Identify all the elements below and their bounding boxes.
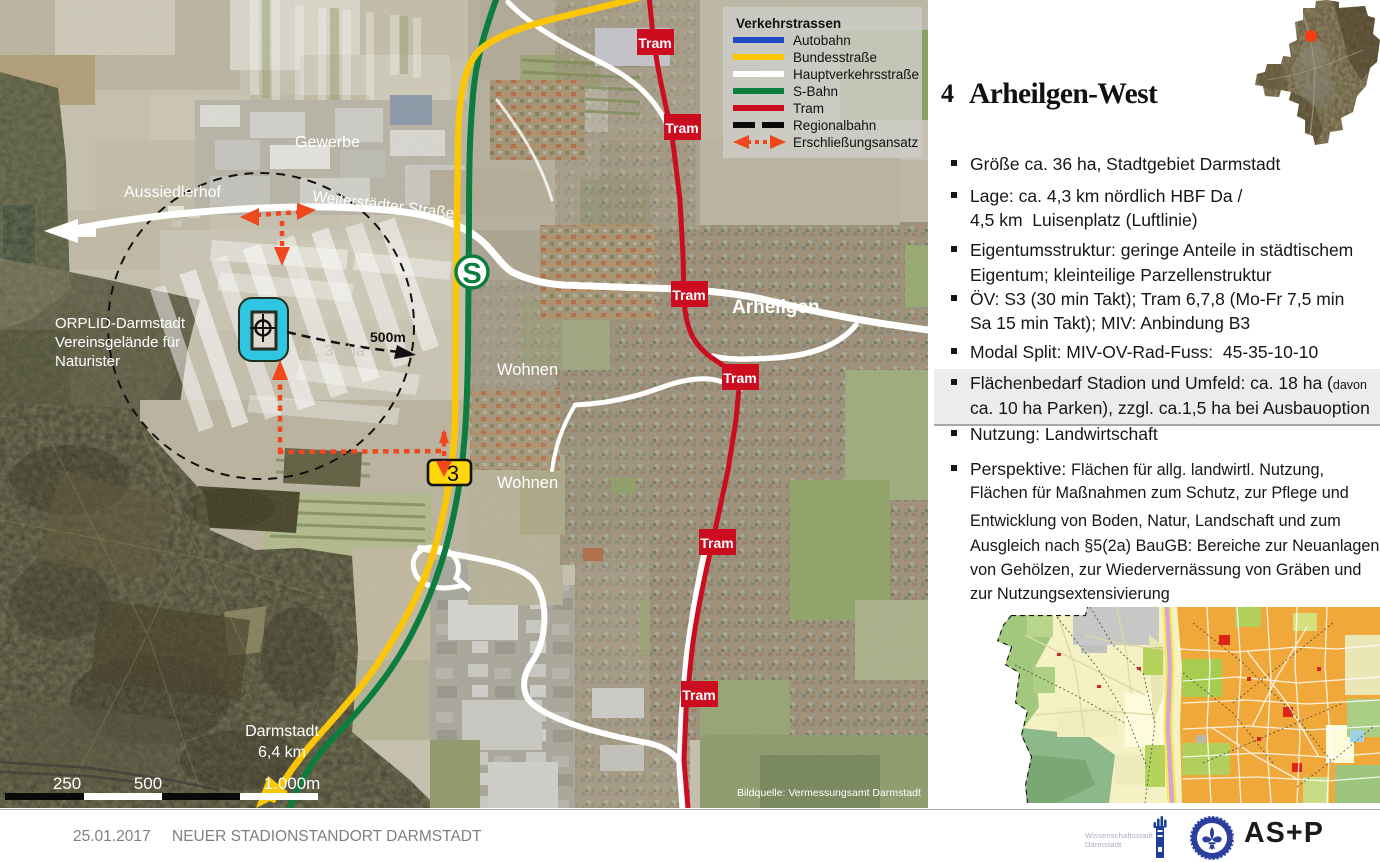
- svg-text:Tram: Tram: [793, 101, 824, 116]
- svg-text:Gewerbe: Gewerbe: [295, 134, 360, 151]
- svg-text:Autobahn: Autobahn: [793, 33, 851, 48]
- svg-text:Verkehrstrassen: Verkehrstrassen: [736, 16, 841, 31]
- svg-text:S: S: [462, 258, 481, 290]
- svg-text:Bildquelle: Vermessungsamt Dar: Bildquelle: Vermessungsamt Darmstadt: [737, 787, 921, 799]
- svg-text:Bundesstraße: Bundesstraße: [793, 50, 877, 65]
- svg-text:Tram: Tram: [700, 535, 733, 551]
- svg-text:Hauptverkehrsstraße: Hauptverkehrsstraße: [793, 67, 919, 82]
- svg-text:6,4 km: 6,4 km: [258, 744, 306, 761]
- svg-text:ca. 36 ha: ca. 36 ha: [299, 343, 365, 360]
- svg-text:S-Bahn: S-Bahn: [793, 84, 838, 99]
- svg-text:500: 500: [134, 774, 162, 793]
- svg-text:Wohnen: Wohnen: [497, 361, 558, 379]
- svg-text:500m: 500m: [370, 329, 406, 345]
- svg-text:Tram: Tram: [672, 287, 705, 303]
- svg-text:Vereinsgelände für: Vereinsgelände für: [55, 334, 180, 351]
- svg-text:Aussiedlerhof: Aussiedlerhof: [124, 184, 222, 201]
- svg-text:1.000m: 1.000m: [264, 774, 321, 793]
- svg-text:Arheilgen: Arheilgen: [732, 297, 820, 318]
- svg-text:250: 250: [53, 774, 81, 793]
- svg-text:Wohnen: Wohnen: [497, 474, 558, 492]
- svg-text:ORPLID-Darmstadt: ORPLID-Darmstadt: [55, 315, 186, 332]
- svg-text:Tram: Tram: [682, 687, 715, 703]
- svg-text:Tram: Tram: [665, 120, 698, 136]
- svg-text:Tram: Tram: [723, 370, 756, 386]
- svg-text:Regionalbahn: Regionalbahn: [793, 118, 876, 133]
- svg-text:Erschließungsansatz: Erschließungsansatz: [793, 135, 919, 150]
- svg-text:Naturister: Naturister: [55, 353, 120, 370]
- svg-text:Darmstadt: Darmstadt: [245, 723, 319, 740]
- svg-text:Tram: Tram: [638, 35, 671, 51]
